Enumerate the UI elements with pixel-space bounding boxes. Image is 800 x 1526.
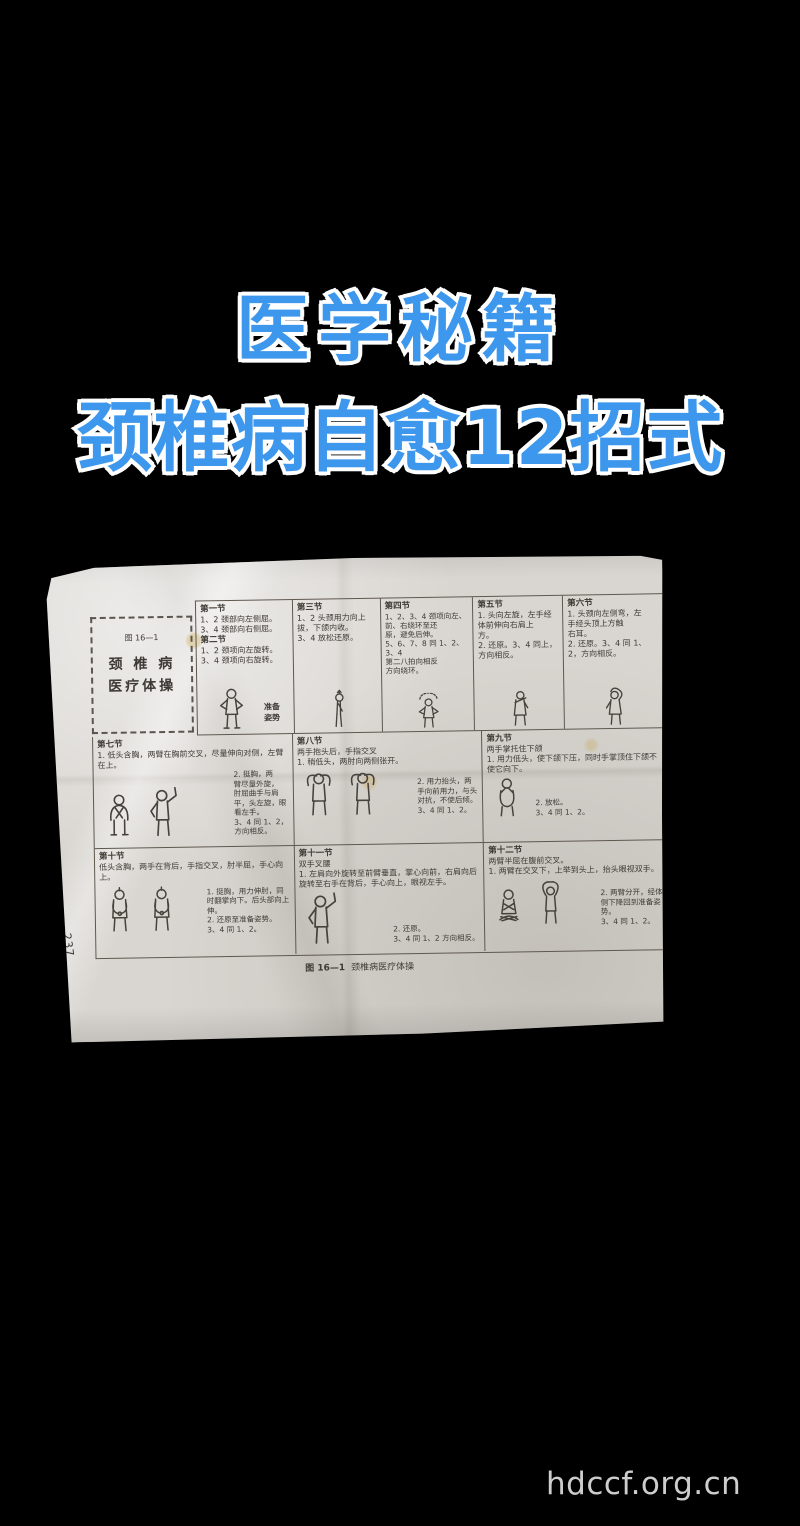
section-text: 两手掌托住下颌 1. 用力低头，使下颌下压，同时手掌顶住下颌不使它向下。 bbox=[487, 742, 663, 775]
cell-section-12: 第十二节 两臂半屈在腹前交叉。 1. 两臂在交叉下，上举到头上，抬头眼视双手。 … bbox=[484, 840, 668, 951]
section-text: 两臂半屈在腹前交叉。 1. 两臂在交叉下，上举到头上，抬头眼视双手。 bbox=[488, 854, 664, 877]
figure-arm-raised-icon bbox=[299, 890, 346, 945]
cell-section-3: 第三节 1、2 头颈用力向上 拔，下颌内收。 3、4 放松还原。 bbox=[293, 599, 383, 733]
figure-arm-raised-icon bbox=[142, 783, 187, 838]
cell-section-7: 第七节 1. 低头含胸，两臂在胸前交叉，尽量伸向对侧，左臂在上。 2. 挺胸，两… bbox=[93, 734, 294, 848]
chart-row-2: 第七节 1. 低头含胸，两臂在胸前交叉，尽量伸向对侧，左臂在上。 2. 挺胸，两… bbox=[93, 728, 667, 849]
chart-row-3: 第十节 低头含胸，两手在背后，手指交叉，肘半屈，手心向上。 1. 挺胸，用力伸肘… bbox=[95, 840, 669, 957]
figure-hands-behind-head-icon bbox=[297, 768, 340, 817]
figure-back-view-icon bbox=[99, 883, 140, 936]
section-text: 双手叉腰 1. 左肩向外旋转至前臂垂直，掌心向前，右肩向后旋转至右手在背后，手心… bbox=[299, 857, 481, 890]
section-text: 1. 头颈向左侧弯，左 手经头顶上方触 右耳。 2. 还原。3、4 同 1、 2… bbox=[567, 608, 661, 659]
figure-seated-cross-icon bbox=[489, 883, 530, 928]
figure-arm-cross-icon bbox=[502, 687, 539, 728]
figure-caption-number: 图 16—1 bbox=[305, 963, 345, 974]
figure-neck-stretch-icon bbox=[320, 688, 357, 731]
figure-bow-icon bbox=[98, 788, 141, 839]
cell-section-8: 第八节 两手抱头后，手指交叉 1. 稍低头，两肘向两侧张开。 2. 用力抬头，两… bbox=[293, 731, 484, 845]
cell-section-11: 第十一节 双手叉腰 1. 左肩向外旋转至前臂垂直，掌心向前，右肩向后旋转至右手在… bbox=[294, 843, 485, 954]
cell-section-6: 第六节 1. 头颈向左侧弯，左 手经头顶上方触 右耳。 2. 还原。3、4 同 … bbox=[563, 594, 665, 729]
figure-caption-text: 颈椎病医疗体操 bbox=[351, 962, 414, 973]
cell-section-1-2: 第一节 1、2 颈部向左侧屈。 3、4 颈部向右侧屈。 第二节 1、2 颈项向左… bbox=[196, 600, 295, 735]
prep-pose-label: 准备 姿势 bbox=[264, 701, 280, 723]
video-frame: { "colors": { "background": "#000000", "… bbox=[0, 0, 800, 1526]
chart-row-1: 第一节 1、2 颈部向左侧屈。 3、4 颈部向右侧屈。 第二节 1、2 颈项向左… bbox=[195, 593, 665, 735]
section-text: 低头含胸，两手在背后，手指交叉，肘半屈，手心向上。 bbox=[99, 860, 291, 883]
section-text: 2. 两臂分开，经体 侧下降回到准备姿 势。 3、4 同 1、2。 bbox=[600, 887, 665, 926]
section-text: 1、2 颈项向左旋转。 3、4 颈项向右旋转。 bbox=[201, 645, 290, 666]
watermark-url: hdccf.org.cn bbox=[546, 1466, 741, 1502]
figure-caption: 图 16—1颈椎病医疗体操 bbox=[51, 955, 669, 978]
section-text: 两手抱头后，手指交叉 1. 稍低头，两肘向两侧张开。 bbox=[297, 745, 479, 768]
figure-arms-overhead-icon bbox=[531, 877, 572, 928]
chart-title-box: 图 16—1 颈 椎 病 医疗体操 bbox=[90, 616, 194, 735]
figure-arm-overhead-icon bbox=[596, 686, 635, 727]
section-text: 2. 挺胸，两 臂尽量外旋， 肘屈曲手与肩 平，头左旋，眼 看左手。 3、4 同… bbox=[233, 769, 290, 836]
section-text: 2. 用力抬头，两 手向前用力，与头 对抗，不使后倾。 3、4 同 1、2。 bbox=[417, 776, 480, 815]
figure-hands-behind-head-icon bbox=[341, 768, 384, 817]
cell-section-4: 第四节 1、2、3、4 颈项向左、 前、右绕环至还 原，避免后伸。 5、6、7、… bbox=[380, 597, 475, 731]
chart-title-l1: 颈 椎 病 bbox=[98, 653, 186, 677]
section-text: 2. 还原。 3、4 同 1、2 方向相反。 bbox=[393, 923, 482, 943]
cell-section-10: 第十节 低头含胸，两手在背后，手指交叉，肘半屈，手心向上。 1. 挺胸，用力伸肘… bbox=[95, 846, 296, 957]
title-fill: 医学秘籍 bbox=[0, 292, 800, 369]
section-text: 1、2 颈部向左侧屈。 3、4 颈部向右侧屈。 bbox=[200, 614, 289, 635]
cell-section-5: 第五节 1. 头向左旋，左手经 体前伸向右肩上 方。 2. 还原。3、4 同上，… bbox=[473, 596, 565, 730]
page-number: 237 bbox=[60, 932, 76, 958]
cell-section-9: 第九节 两手掌托住下颌 1. 用力低头，使下颌下压，同时手掌顶住下颌不使它向下。… bbox=[482, 728, 666, 842]
exercise-chart-photo: 图 16—1 颈 椎 病 医疗体操 第一节 1、2 颈部向左侧屈。 3、4 颈部… bbox=[44, 551, 669, 1043]
title-fill: 颈椎病自愈12招式 bbox=[0, 398, 800, 478]
figure-head-circle-icon bbox=[411, 693, 446, 730]
section-text: 1、2 头颈用力向上 拔，下颌内收。 3、4 放松还原。 bbox=[297, 613, 377, 644]
figure-hands-under-chin-icon bbox=[487, 775, 528, 818]
section-text: 1. 挺胸，用力伸肘，同 时翻掌向下。后头部向上 伸。 2. 还原至准备姿势。 … bbox=[207, 886, 292, 935]
section-text: 1. 低头含胸，两臂在胸前交叉，尽量伸向对侧，左臂在上。 bbox=[97, 748, 289, 771]
figure-number: 图 16—1 bbox=[97, 632, 185, 644]
figure-hands-on-hips-icon bbox=[212, 687, 253, 733]
section-text: 2. 放松。 3、4 同 1、2。 bbox=[535, 797, 591, 817]
section-text: 1、2、3、4 颈项向左、 前、右绕环至还 原，避免后伸。 5、6、7、8 同 … bbox=[385, 611, 471, 675]
chart-title-l2: 医疗体操 bbox=[98, 675, 186, 699]
section-text: 1. 头向左旋，左手经 体前伸向右肩上 方。 2. 还原。3、4 同上， 方向相… bbox=[478, 610, 561, 661]
figure-back-view-icon bbox=[141, 883, 182, 936]
chart-rows-2-3: 第七节 1. 低头含胸，两臂在胸前交叉，尽量伸向对侧，左臂在上。 2. 挺胸，两… bbox=[92, 728, 668, 959]
